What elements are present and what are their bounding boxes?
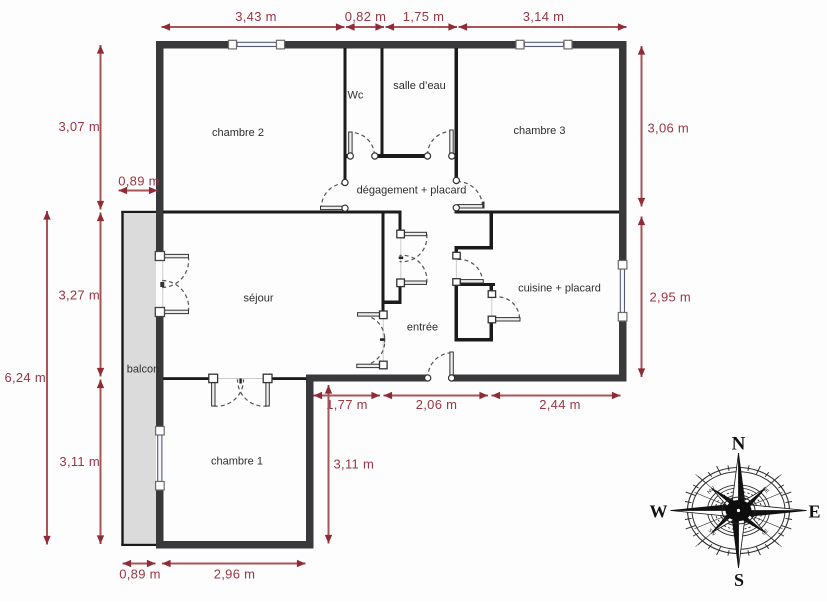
svg-text:3,14 m: 3,14 m — [523, 9, 565, 24]
svg-text:3,27 m: 3,27 m — [58, 288, 100, 303]
svg-text:3,11 m: 3,11 m — [334, 457, 375, 472]
svg-text:1,77 m: 1,77 m — [326, 397, 368, 412]
svg-text:0,89 m: 0,89 m — [119, 567, 161, 582]
svg-text:E: E — [808, 502, 820, 522]
svg-text:balcon: balcon — [127, 364, 159, 376]
svg-text:dégagement + placard: dégagement + placard — [357, 185, 467, 197]
svg-text:2,44 m: 2,44 m — [539, 397, 581, 412]
svg-text:0,82 m: 0,82 m — [345, 9, 387, 24]
svg-text:2,96 m: 2,96 m — [214, 567, 256, 582]
svg-text:3,43 m: 3,43 m — [235, 9, 277, 24]
svg-text:3,06 m: 3,06 m — [648, 121, 690, 136]
svg-text:3,11 m: 3,11 m — [59, 454, 100, 469]
svg-text:entrée: entrée — [407, 322, 438, 334]
svg-text:3,07 m: 3,07 m — [58, 119, 100, 134]
svg-text:2,06 m: 2,06 m — [416, 397, 458, 412]
svg-text:S: S — [734, 570, 744, 590]
svg-text:0,89 m: 0,89 m — [118, 174, 160, 189]
svg-text:chambre 1: chambre 1 — [211, 456, 263, 468]
svg-text:1,75 m: 1,75 m — [403, 9, 445, 24]
svg-text:N: N — [732, 434, 746, 455]
svg-text:chambre 3: chambre 3 — [514, 125, 566, 137]
svg-text:2,95 m: 2,95 m — [650, 290, 692, 305]
svg-text:chambre 2: chambre 2 — [212, 127, 264, 139]
svg-text:Wc: Wc — [348, 90, 364, 102]
svg-text:séjour: séjour — [244, 293, 274, 305]
svg-text:W: W — [650, 502, 668, 522]
svg-text:6,24 m: 6,24 m — [4, 370, 46, 385]
svg-text:salle d’eau: salle d’eau — [393, 80, 446, 92]
svg-text:cuisine + placard: cuisine + placard — [518, 283, 601, 295]
